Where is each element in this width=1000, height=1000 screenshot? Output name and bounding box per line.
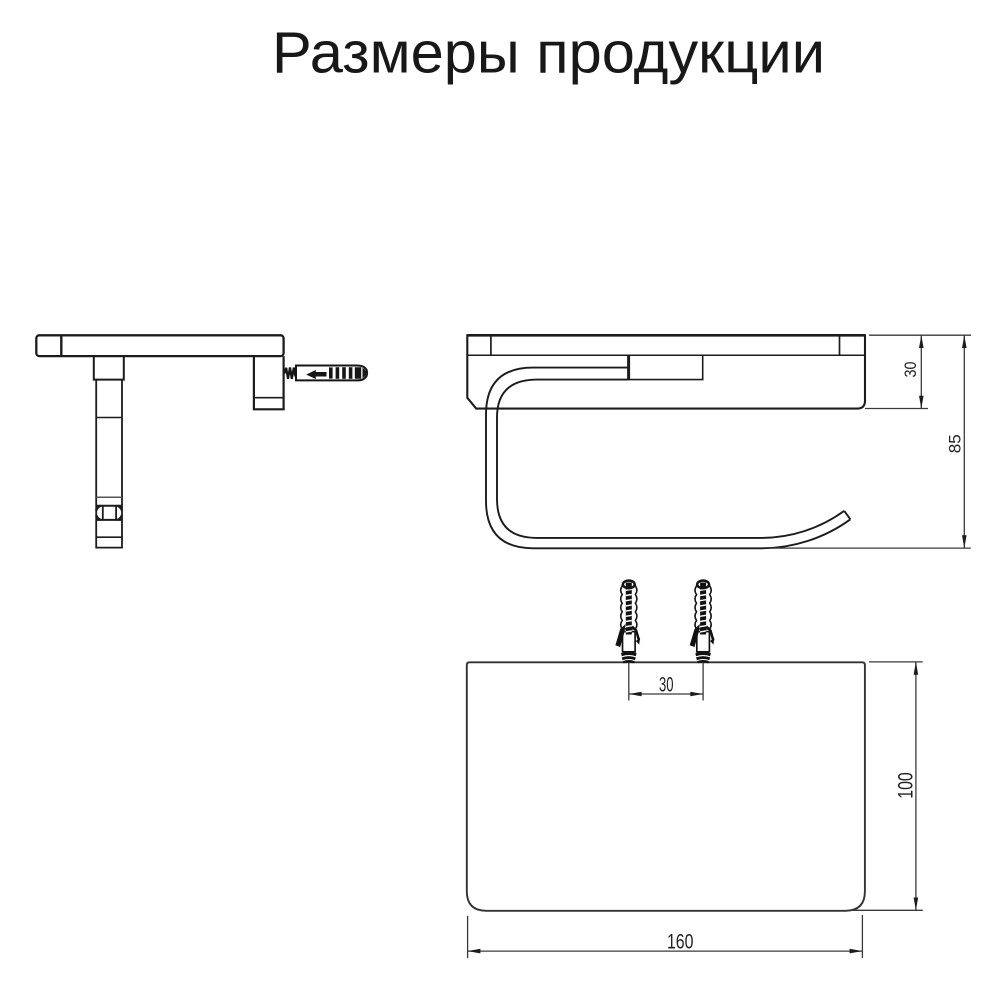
svg-text:30: 30: [659, 674, 674, 697]
svg-text:85: 85: [945, 434, 964, 453]
svg-text:30: 30: [901, 362, 920, 378]
svg-text:Размеры продукции: Размеры продукции: [272, 21, 825, 86]
svg-text:100: 100: [894, 772, 917, 799]
svg-text:160: 160: [667, 931, 694, 954]
